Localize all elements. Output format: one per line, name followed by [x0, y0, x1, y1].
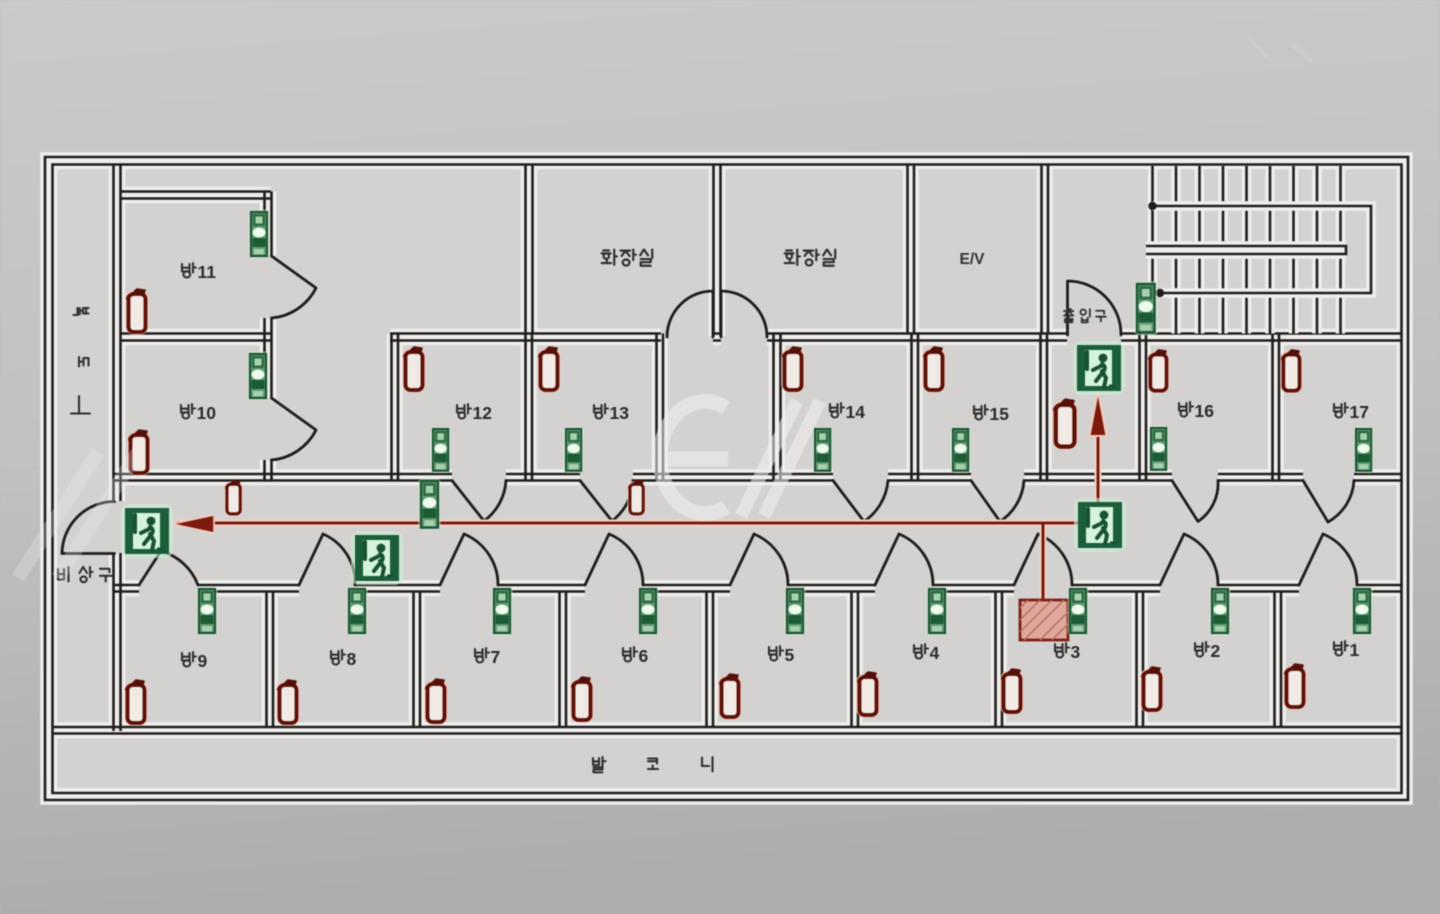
svg-text:15: 15	[990, 404, 1010, 424]
svg-text:14: 14	[846, 402, 866, 422]
svg-text:17: 17	[1350, 402, 1369, 422]
svg-text:8: 8	[347, 649, 357, 669]
svg-text:16: 16	[1195, 401, 1215, 421]
svg-text:10: 10	[197, 403, 217, 423]
svg-text:E/V: E/V	[960, 251, 986, 268]
svg-text:2: 2	[1211, 641, 1221, 661]
svg-text:12: 12	[473, 403, 493, 423]
svg-text:5: 5	[785, 645, 795, 665]
svg-text:9: 9	[198, 651, 208, 671]
svg-text:1: 1	[1350, 640, 1360, 660]
svg-text:11: 11	[198, 262, 217, 282]
svg-text:7: 7	[491, 647, 501, 667]
svg-text:13: 13	[610, 403, 630, 423]
svg-text:6: 6	[639, 646, 649, 666]
svg-text:3: 3	[1071, 642, 1081, 662]
svg-text:4: 4	[930, 643, 940, 663]
